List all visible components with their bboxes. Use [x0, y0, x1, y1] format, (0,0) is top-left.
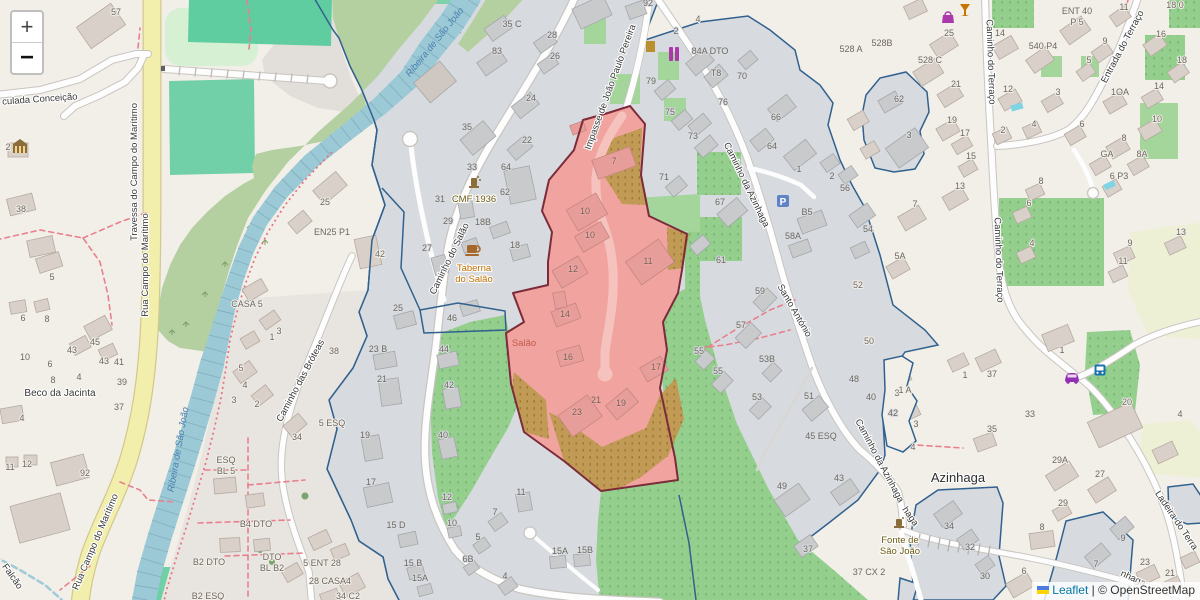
svg-text:B5: B5	[801, 207, 812, 217]
svg-text:92: 92	[643, 0, 653, 8]
svg-text:55: 55	[694, 346, 704, 356]
svg-text:11: 11	[643, 256, 652, 266]
svg-text:15: 15	[966, 151, 976, 161]
svg-text:5: 5	[238, 363, 243, 373]
svg-text:2: 2	[254, 399, 259, 409]
svg-text:DTO: DTO	[263, 552, 282, 562]
svg-text:1 A: 1 A	[898, 385, 911, 395]
svg-text:64: 64	[501, 162, 511, 172]
svg-text:5: 5	[1086, 55, 1091, 65]
svg-text:P: P	[780, 197, 787, 208]
svg-text:29: 29	[1058, 498, 1068, 508]
svg-text:1: 1	[962, 370, 967, 380]
svg-text:19: 19	[360, 430, 370, 440]
svg-text:ENT 40: ENT 40	[1062, 6, 1092, 16]
svg-text:4: 4	[242, 380, 247, 390]
svg-text:92: 92	[80, 468, 90, 478]
svg-text:4: 4	[910, 442, 915, 452]
svg-text:17: 17	[960, 128, 970, 138]
svg-text:5 ENT 28: 5 ENT 28	[303, 558, 341, 568]
svg-text:9: 9	[1127, 238, 1132, 248]
svg-text:11: 11	[1118, 256, 1127, 266]
svg-text:B4 DTO: B4 DTO	[240, 519, 272, 529]
svg-text:9: 9	[1102, 36, 1107, 46]
svg-text:37 CX 2: 37 CX 2	[853, 567, 886, 577]
svg-text:28 CASA4: 28 CASA4	[309, 576, 351, 586]
svg-text:Salão: Salão	[512, 338, 536, 349]
svg-text:71: 71	[659, 172, 669, 182]
svg-text:528 A: 528 A	[839, 44, 862, 54]
svg-text:34: 34	[292, 432, 302, 442]
svg-text:3: 3	[231, 395, 236, 405]
svg-text:25: 25	[393, 303, 403, 313]
svg-text:21: 21	[1165, 568, 1175, 578]
svg-text:70: 70	[737, 71, 747, 81]
svg-text:43: 43	[834, 473, 844, 483]
svg-text:21: 21	[591, 395, 601, 405]
svg-text:13: 13	[1176, 227, 1186, 237]
svg-text:Fonte de: Fonte de	[881, 535, 919, 546]
svg-text:8: 8	[44, 314, 49, 324]
svg-text:B2 DTO: B2 DTO	[193, 557, 225, 567]
svg-text:2: 2	[1000, 125, 1005, 135]
svg-text:3: 3	[1055, 87, 1060, 97]
svg-text:3: 3	[276, 326, 281, 336]
svg-text:1: 1	[796, 164, 801, 174]
svg-text:75: 75	[665, 107, 675, 117]
svg-text:8: 8	[1121, 133, 1126, 143]
svg-text:21: 21	[377, 374, 387, 384]
svg-text:11: 11	[1119, 2, 1128, 12]
svg-text:76: 76	[718, 97, 728, 107]
svg-text:56: 56	[840, 183, 850, 193]
svg-text:8: 8	[50, 375, 55, 385]
svg-text:23 B: 23 B	[369, 344, 388, 354]
svg-text:26: 26	[550, 51, 560, 61]
svg-text:27: 27	[422, 243, 432, 253]
svg-text:5: 5	[475, 532, 480, 542]
svg-text:57: 57	[736, 320, 746, 330]
svg-text:7: 7	[492, 507, 497, 517]
svg-text:Beco da Jacinta: Beco da Jacinta	[24, 388, 96, 399]
svg-text:15A: 15A	[412, 573, 428, 583]
svg-text:25: 25	[944, 28, 954, 38]
svg-text:40: 40	[438, 430, 448, 440]
svg-text:10: 10	[447, 518, 457, 528]
svg-text:5: 5	[49, 272, 54, 282]
svg-text:GA: GA	[1100, 149, 1113, 159]
svg-text:São João: São João	[880, 546, 920, 557]
svg-text:37: 37	[803, 544, 813, 554]
svg-text:18: 18	[1177, 55, 1187, 65]
svg-text:51: 51	[804, 391, 814, 401]
svg-text:8A: 8A	[1136, 149, 1147, 159]
svg-text:6: 6	[1026, 198, 1031, 208]
svg-text:33: 33	[467, 162, 477, 172]
svg-text:24: 24	[526, 93, 536, 103]
svg-text:27: 27	[1095, 469, 1105, 479]
svg-text:29A: 29A	[1052, 455, 1068, 465]
svg-text:37: 37	[114, 402, 124, 412]
svg-text:42: 42	[375, 249, 385, 259]
svg-text:14: 14	[995, 28, 1005, 38]
svg-text:42: 42	[444, 380, 454, 390]
svg-text:53B: 53B	[759, 354, 775, 364]
svg-text:4: 4	[19, 413, 24, 423]
svg-text:66: 66	[771, 112, 781, 122]
svg-text:23: 23	[1140, 557, 1150, 567]
svg-text:33: 33	[1025, 409, 1035, 419]
svg-text:38: 38	[329, 346, 339, 356]
svg-text:21: 21	[951, 79, 961, 89]
svg-text:79: 79	[646, 76, 656, 86]
svg-text:4: 4	[1029, 238, 1034, 248]
svg-text:2: 2	[673, 26, 678, 36]
svg-text:8: 8	[1039, 522, 1044, 532]
svg-text:BL B2: BL B2	[260, 563, 284, 573]
svg-text:CASA 5: CASA 5	[231, 299, 263, 309]
svg-text:2: 2	[829, 171, 834, 181]
svg-text:28: 28	[547, 30, 557, 40]
svg-text:2: 2	[5, 142, 10, 152]
svg-text:40: 40	[866, 392, 876, 402]
svg-text:6 P3: 6 P3	[1110, 171, 1129, 181]
svg-text:7: 7	[611, 156, 616, 166]
svg-text:41: 41	[114, 357, 124, 367]
svg-text:83: 83	[492, 46, 502, 56]
svg-text:6: 6	[47, 359, 52, 369]
svg-text:13: 13	[955, 181, 965, 191]
svg-text:14: 14	[560, 309, 570, 319]
svg-text:29: 29	[443, 216, 453, 226]
svg-text:12: 12	[22, 459, 32, 469]
svg-text:Taberna: Taberna	[457, 263, 492, 274]
svg-text:5A: 5A	[894, 251, 905, 261]
svg-text:18B: 18B	[475, 217, 491, 227]
svg-text:1: 1	[1059, 345, 1064, 355]
svg-text:do Salão: do Salão	[455, 274, 493, 285]
svg-text:34 C2: 34 C2	[336, 591, 360, 600]
svg-text:30: 30	[980, 571, 990, 581]
svg-text:4: 4	[502, 571, 507, 581]
svg-text:37: 37	[987, 369, 997, 379]
svg-text:53: 53	[752, 392, 762, 402]
svg-text:67: 67	[715, 197, 725, 207]
svg-text:19: 19	[616, 398, 626, 408]
svg-text:38: 38	[16, 204, 26, 214]
svg-text:34: 34	[944, 521, 954, 531]
svg-text:59: 59	[755, 286, 765, 296]
svg-text:BL 5: BL 5	[217, 466, 235, 476]
svg-text:9: 9	[1120, 533, 1125, 543]
svg-text:14: 14	[1154, 81, 1164, 91]
svg-text:73: 73	[688, 131, 698, 141]
svg-text:54: 54	[863, 224, 873, 234]
svg-text:42: 42	[888, 408, 898, 418]
svg-text:528B: 528B	[871, 38, 892, 48]
svg-text:1: 1	[269, 332, 274, 342]
svg-text:10: 10	[585, 230, 595, 240]
svg-text:61: 61	[716, 255, 726, 265]
svg-text:17: 17	[651, 362, 661, 372]
svg-text:T8: T8	[711, 68, 722, 78]
svg-text:43: 43	[67, 345, 77, 355]
svg-text:5 ESQ: 5 ESQ	[319, 418, 346, 428]
svg-text:31: 31	[435, 194, 445, 204]
svg-text:10: 10	[580, 206, 590, 216]
svg-text:17: 17	[366, 477, 376, 487]
svg-text:62: 62	[894, 94, 904, 104]
svg-text:12: 12	[568, 264, 578, 274]
svg-text:4: 4	[76, 372, 81, 382]
svg-text:12: 12	[1003, 84, 1013, 94]
svg-text:18 0: 18 0	[1166, 0, 1184, 10]
svg-text:Rua Campo do Marítimo: Rua Campo do Marítimo	[140, 213, 151, 316]
svg-text:57: 57	[111, 7, 121, 17]
svg-text:11: 11	[516, 487, 525, 497]
svg-text:4: 4	[695, 14, 700, 24]
svg-text:16: 16	[563, 352, 573, 362]
svg-text:18: 18	[510, 240, 520, 250]
svg-text:15A: 15A	[552, 546, 568, 556]
svg-text:4: 4	[1177, 409, 1182, 419]
svg-text:55: 55	[713, 366, 723, 376]
svg-text:45: 45	[90, 337, 100, 347]
svg-text:540 P4: 540 P4	[1029, 41, 1058, 51]
svg-text:45 ESQ: 45 ESQ	[805, 431, 837, 441]
svg-text:64: 64	[767, 141, 777, 151]
svg-text:39: 39	[117, 377, 127, 387]
svg-text:58A: 58A	[785, 231, 801, 241]
svg-text:B2 ESQ: B2 ESQ	[192, 591, 225, 600]
svg-text:11: 11	[5, 462, 14, 472]
svg-text:44: 44	[439, 344, 449, 354]
svg-text:32: 32	[965, 542, 975, 552]
svg-text:35: 35	[462, 122, 472, 132]
svg-text:Azinhaga: Azinhaga	[931, 470, 986, 485]
svg-text:23: 23	[572, 407, 582, 417]
svg-text:22: 22	[522, 135, 532, 145]
svg-text:ESQ: ESQ	[216, 455, 235, 465]
svg-text:25: 25	[320, 197, 330, 207]
svg-text:6: 6	[20, 313, 25, 323]
svg-text:50: 50	[864, 336, 874, 346]
svg-text:EN25 P1: EN25 P1	[314, 227, 350, 237]
svg-text:43: 43	[99, 356, 109, 366]
svg-text:7: 7	[912, 199, 917, 209]
svg-text:35 C: 35 C	[502, 19, 522, 29]
svg-text:7: 7	[1093, 559, 1098, 569]
svg-text:15B: 15B	[577, 545, 593, 555]
svg-text:16: 16	[1156, 29, 1166, 39]
svg-text:P 5: P 5	[1070, 17, 1083, 27]
svg-text:19: 19	[947, 115, 957, 125]
svg-text:52: 52	[853, 280, 863, 290]
svg-text:10: 10	[20, 352, 30, 362]
svg-text:1OA: 1OA	[1111, 87, 1129, 97]
svg-text:46: 46	[447, 313, 457, 323]
svg-text:10: 10	[1152, 114, 1162, 124]
svg-text:528 C: 528 C	[918, 55, 943, 65]
svg-text:8: 8	[1038, 176, 1043, 186]
svg-text:4: 4	[1031, 119, 1036, 129]
svg-text:15 B: 15 B	[404, 558, 423, 568]
svg-text:20: 20	[1122, 397, 1132, 407]
svg-text:49: 49	[777, 481, 787, 491]
svg-text:Travessa do Campo do Marítimo: Travessa do Campo do Marítimo	[129, 103, 140, 241]
svg-text:CMF 1936: CMF 1936	[452, 194, 496, 205]
svg-text:6B: 6B	[462, 554, 473, 564]
svg-text:84A DTO: 84A DTO	[692, 46, 729, 56]
svg-text:62: 62	[500, 187, 510, 197]
svg-text:12: 12	[442, 492, 452, 502]
svg-text:48: 48	[849, 374, 859, 384]
svg-text:6: 6	[1079, 119, 1084, 129]
svg-text:6: 6	[1021, 566, 1026, 576]
svg-text:3: 3	[906, 130, 911, 140]
svg-text:15 D: 15 D	[386, 520, 406, 530]
svg-text:35: 35	[987, 424, 997, 434]
svg-text:3: 3	[913, 419, 918, 429]
